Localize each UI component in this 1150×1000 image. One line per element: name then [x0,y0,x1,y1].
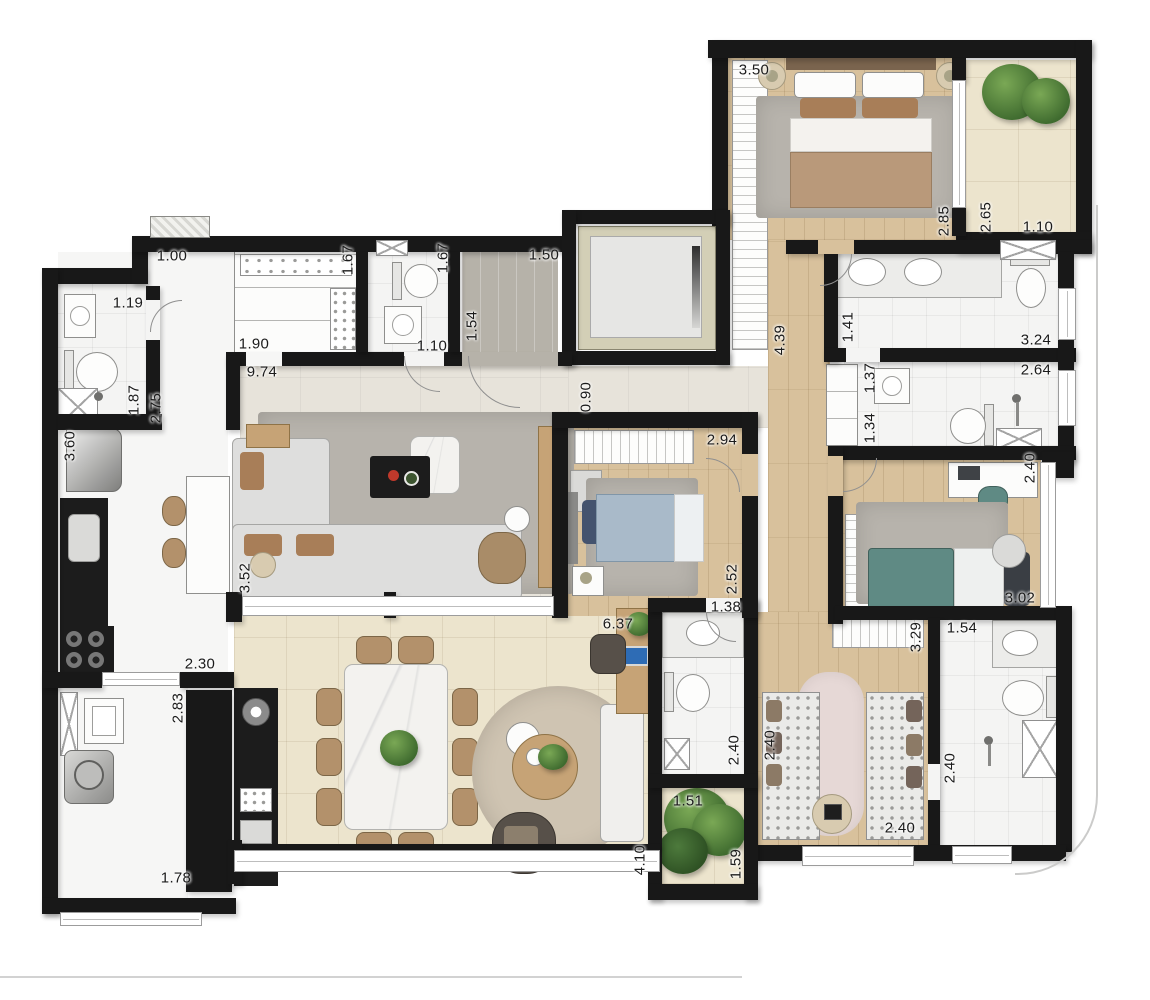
floor-suite-corridor [768,240,830,612]
burner [66,652,82,668]
door-opening [828,456,843,496]
counter-sink [242,698,270,726]
bedroom2-window [574,430,694,464]
toilet-bowl [76,352,118,392]
balcony-plant [1022,78,1070,124]
table-centerpiece-plant [380,730,418,766]
dim-garden-height: 1.59 [728,849,745,879]
shower-hose [988,744,991,766]
balcony-edge-outline [1015,205,1098,875]
door-opening [818,240,854,254]
toilet-bowl [676,674,710,712]
wall [180,672,234,688]
bed-sheet [790,118,932,152]
burner [66,631,82,647]
lavabo-basin [392,314,414,336]
coffee-table-black [370,456,430,498]
dim-balcony-width: 1.10 [1023,219,1053,236]
dim-master-width: 3.50 [739,62,769,79]
wall [712,40,728,226]
dim-kitchen-width: 2.30 [185,656,215,673]
vanity-sink [904,258,942,286]
lamp [580,572,592,584]
clothes [766,764,782,786]
sofa-pillow [240,452,264,490]
dim-bath2-width: 2.64 [1021,362,1051,379]
office-chair [590,634,626,674]
decor-green-plate [404,471,419,486]
window [1040,462,1056,608]
terrace-glass-rail [234,850,660,872]
master-headboard [786,58,936,70]
clothes [766,700,782,722]
terrace-fern [658,828,708,874]
door-opening [742,454,758,496]
wc-sink-basin [70,306,90,326]
door-opening [928,764,940,800]
wall [952,206,966,236]
dim-closet-width: 2.40 [885,820,915,837]
dim-mbath-width: 3.24 [1021,332,1051,349]
dim-balcony-height: 2.65 [978,202,995,232]
kitchen-sink [68,514,100,562]
elevator-door [692,246,700,328]
duct [150,216,210,238]
burner [88,631,104,647]
terrace-sofa [600,704,644,842]
door-opening [846,348,880,362]
round-side-table [504,506,530,532]
accent-pillow [800,98,856,118]
dim-bed2-height: 2.52 [724,564,741,594]
dim-laundry-width: 1.78 [161,870,191,887]
clothes [906,734,922,756]
dim-master-closet: 4.39 [772,325,789,355]
dim-wc-height: 1.87 [126,385,143,415]
vanity-sink [848,258,886,286]
dim-bath2-h2: 1.34 [862,413,879,443]
desk-books [958,466,980,480]
basket [250,552,276,578]
wall [708,40,1092,58]
coffee-table-plant [538,744,568,770]
clothes [906,700,922,722]
dim-wc-width: 1.19 [113,295,143,312]
window [802,846,914,866]
wall [42,268,58,914]
dim-hall-length: 9.74 [247,364,277,381]
dim-bed3-width: 3.02 [1005,590,1035,607]
burner [88,652,104,668]
wall [42,672,102,688]
dim-closet-shelf: 3.29 [908,622,925,652]
window [1058,370,1076,426]
toilet-bowl [404,264,438,298]
window-sill [60,912,202,926]
sofa-pillow [296,534,334,556]
wall [356,252,368,352]
dim-bath3-height: 2.40 [726,735,743,765]
dim-living-height: 3.52 [237,563,254,593]
bed-sheet [674,494,704,562]
dim-lavabo-width: 1.10 [417,338,447,355]
bed-duvet-teal [868,548,954,610]
island-stool [162,538,186,568]
dim-hall-width: 0.90 [578,382,595,412]
dim-bath4-width: 1.54 [947,620,977,637]
wall-niche [1000,240,1056,260]
laundry-cabinet [60,692,78,756]
page-rule [0,976,742,978]
dining-chair [316,738,342,776]
linen-cabinet [826,364,858,446]
wall [562,210,730,224]
dim-garden-width: 1.51 [673,793,703,810]
wall [186,690,232,892]
toilet-tank [392,262,402,300]
wall [928,618,940,848]
wall [58,414,162,430]
toilet-tank [664,672,674,712]
dim-bath4-height: 2.40 [942,753,959,783]
bed-duvet [790,152,932,208]
toilet-bowl [950,408,986,444]
wall [552,412,758,428]
dim-closet-height: 2.40 [762,730,779,760]
pantry-jars [240,254,352,276]
wall [744,598,758,900]
side-table-wood [246,424,290,448]
oven [240,820,272,844]
wall [226,592,242,622]
pouf-armchair [478,532,526,584]
island-stool [162,496,186,526]
dim-master-height: 2.85 [936,206,953,236]
laundry-sliding-door [102,672,180,686]
decor-red-bowl [388,470,399,481]
dim-pantry-height: 1.67 [340,245,357,275]
dim-lavabo-height: 1.67 [435,243,452,273]
window [952,846,1012,864]
washer-door [74,760,104,790]
elevator-cab [590,236,702,338]
dining-chair [316,688,342,726]
dim-corridor-height: 2.75 [148,393,165,423]
shaft [664,738,690,770]
dim-bath3-width: 1.38 [711,599,741,616]
bed-pillow [794,72,856,98]
wine-rack [240,788,272,812]
dim-kitchen-height: 3.60 [62,431,79,461]
dim-entry-width: 1.50 [529,247,559,264]
wall [648,774,758,788]
dim-bath2-h1: 1.37 [862,363,879,393]
wall [716,210,730,365]
kitchen-island [186,476,230,594]
dim-pantry-width: 1.90 [239,336,269,353]
bed-headboard [568,492,578,564]
dim-bed3-height: 2.40 [1022,453,1039,483]
dining-chair [356,636,392,664]
dim-terrace-height: 4.10 [632,845,649,875]
dining-chair [316,788,342,826]
dim-entry-height: 1.54 [464,311,481,341]
wall [562,210,576,365]
clothes [906,766,922,788]
laundry-sink-basin [92,706,116,736]
dining-chair [452,688,478,726]
bed-pillow [862,72,924,98]
dim-mbath-height: 1.41 [840,312,857,342]
wall [552,412,568,618]
dining-chair [398,636,434,664]
bag [824,804,842,820]
window [1058,288,1076,340]
wall [952,58,966,82]
floor-plan: 1.00 1.19 1.87 2.75 3.60 2.30 2.83 1.78 … [0,0,1150,1000]
dim-corridor-width: 1.00 [157,248,187,265]
wall-niche [376,240,408,256]
balcony-glass-door [952,80,966,208]
wall [226,356,240,430]
dim-laundry-height: 2.83 [170,693,187,723]
sliding-glass-doors [242,596,554,616]
pantry-wine-rack [330,288,356,350]
wall [648,884,758,900]
dim-bed2-width: 2.94 [707,432,737,449]
accent-pillow [862,98,918,118]
bath-basin [882,376,902,396]
dim-terrace-width: 6.37 [603,616,633,633]
wall [562,351,730,365]
shower-head [94,392,103,401]
wall [742,412,758,618]
